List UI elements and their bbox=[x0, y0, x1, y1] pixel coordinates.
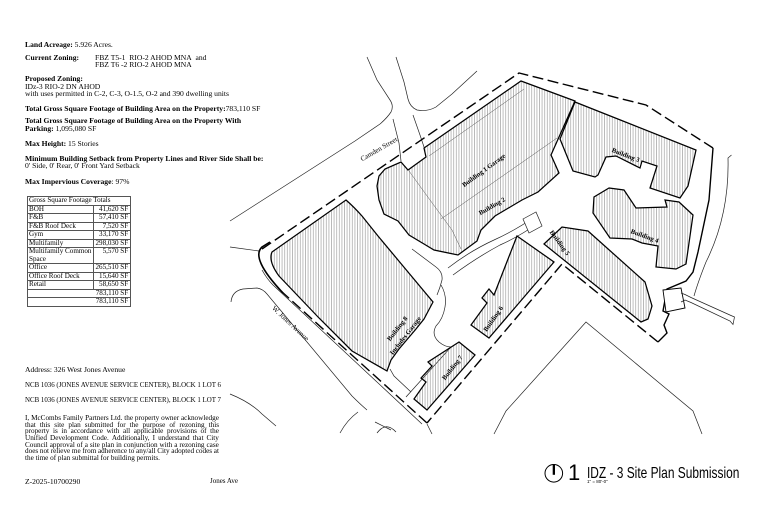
svg-text:Jones Ave: Jones Ave bbox=[210, 477, 238, 485]
svg-text:W. Jones Avenue: W. Jones Avenue bbox=[270, 304, 310, 342]
